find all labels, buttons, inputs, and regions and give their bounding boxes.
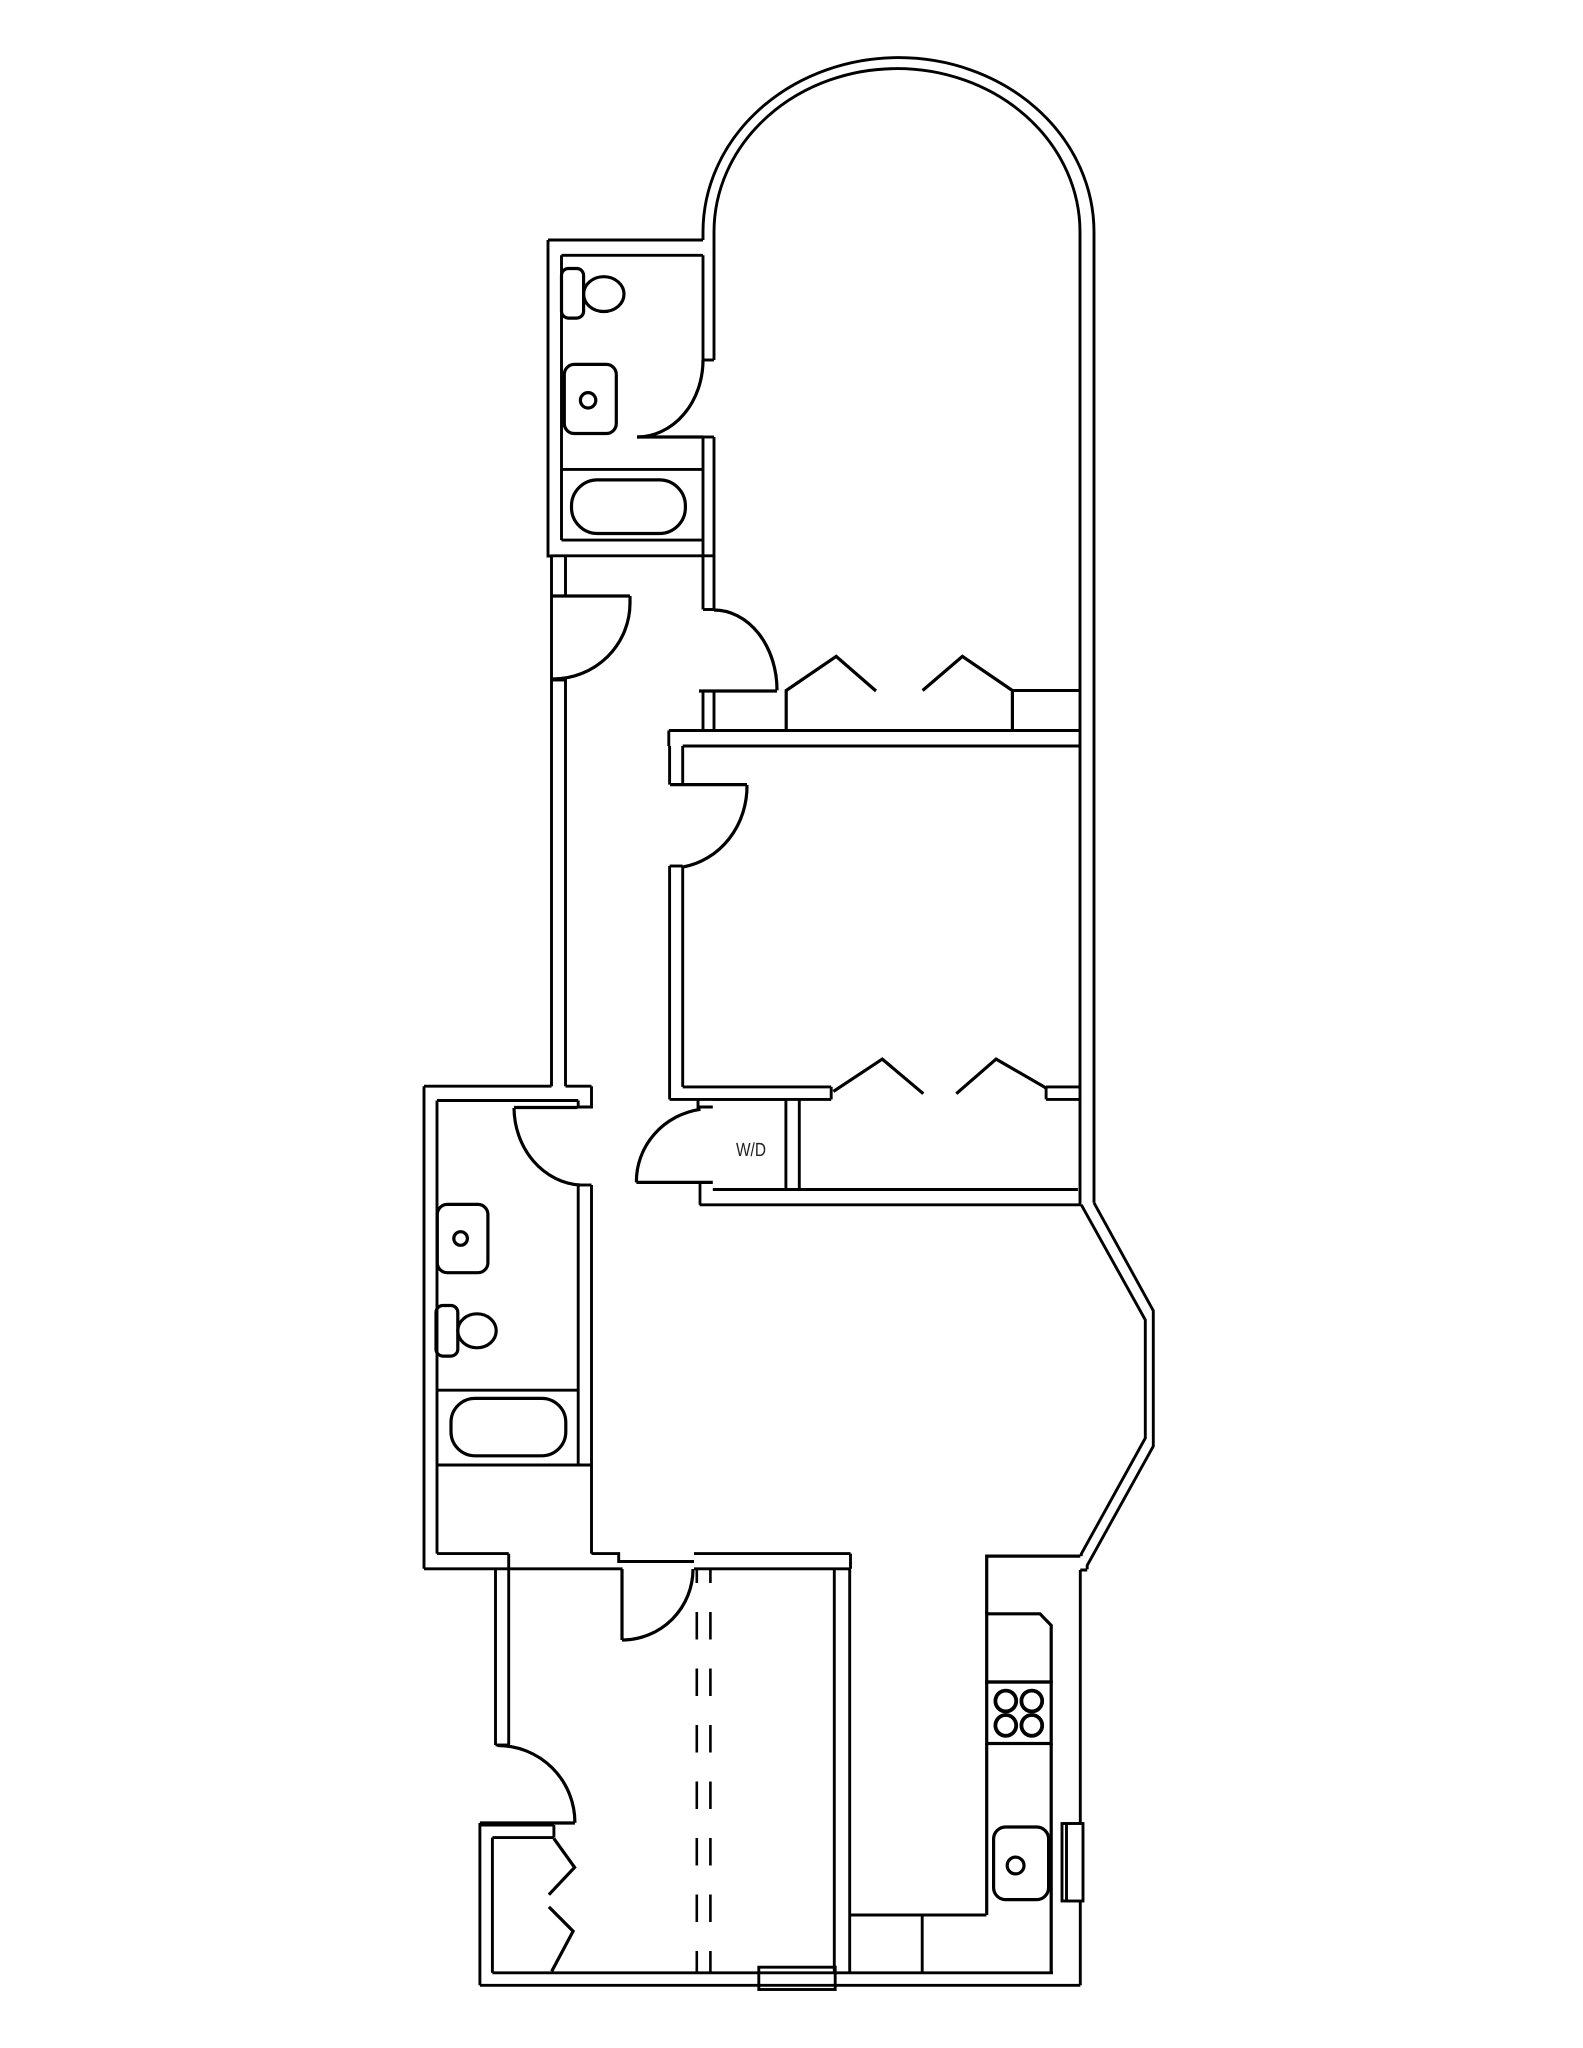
- svg-text:W/D: W/D: [736, 1140, 766, 1161]
